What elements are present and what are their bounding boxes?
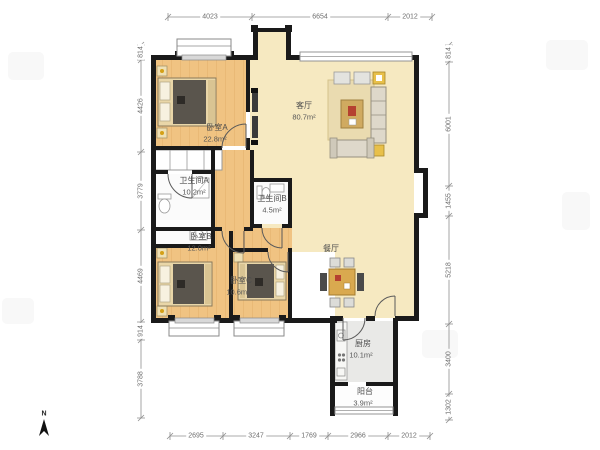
dim-bottom-3: 2966	[348, 433, 368, 440]
room-label-bedroom-c: 卧室C	[230, 277, 252, 285]
dim-right-0: 814	[446, 45, 453, 61]
room-label-kitchen: 厨房	[355, 340, 371, 348]
dim-top-1: 6654	[310, 14, 330, 21]
dim-left-0: 814	[138, 44, 145, 60]
room-area-bedroom-b: 12.0m²	[187, 244, 210, 252]
room-area-living-room: 80.7m²	[292, 113, 315, 121]
room-area-bedroom-a: 22.8m²	[203, 135, 226, 143]
dim-top-2: 2012	[400, 14, 420, 21]
dim-right-5: 1302	[446, 397, 453, 417]
floor-plan-canvas	[0, 0, 600, 450]
dim-left-1: 4426	[138, 96, 145, 116]
dim-right-3: 5218	[446, 260, 453, 280]
watermark	[2, 298, 34, 324]
room-label-bathroom-a: 卫生间A	[179, 177, 208, 185]
kitchen-counter	[335, 322, 347, 380]
room-area-balcony: 3.9m²	[353, 399, 372, 407]
room-area-bathroom-b: 4.5m²	[262, 206, 281, 214]
compass-north-label: N	[41, 411, 46, 418]
floor-plan-page: 卧室A 22.8m² 客厅 80.7m² 卫生间A 10.2m² 卫生间B 4.…	[0, 0, 600, 450]
dim-right-1: 6001	[446, 114, 453, 134]
room-area-bedroom-c: 10.6m²	[226, 288, 249, 296]
watermark	[562, 192, 590, 230]
room-label-bedroom-a: 卧室A	[206, 124, 227, 132]
dim-left-5: 3788	[138, 369, 145, 389]
room-label-balcony: 阳台	[357, 388, 373, 396]
room-label-living-room: 客厅	[296, 102, 312, 110]
room-label-bedroom-b: 卧室B	[190, 233, 211, 241]
room-area-kitchen: 10.1m²	[349, 351, 372, 359]
watermark	[8, 52, 44, 80]
compass-north-icon	[39, 419, 49, 436]
dim-bottom-1: 3247	[246, 433, 266, 440]
dim-bottom-0: 2695	[186, 433, 206, 440]
room-area-bathroom-a: 10.2m²	[182, 188, 205, 196]
room-label-bathroom-b: 卫生间B	[257, 195, 286, 203]
watermark	[422, 330, 458, 358]
dim-bottom-2: 1769	[299, 433, 319, 440]
dim-right-2: 1455	[446, 191, 453, 211]
dim-top-0: 4023	[200, 14, 220, 21]
dim-left-4: 914	[138, 323, 145, 339]
dim-left-2: 3779	[138, 181, 145, 201]
dim-bottom-4: 2012	[399, 433, 419, 440]
room-label-dining-room: 餐厅	[323, 245, 339, 253]
watermark	[546, 40, 588, 70]
dim-left-3: 4469	[138, 266, 145, 286]
